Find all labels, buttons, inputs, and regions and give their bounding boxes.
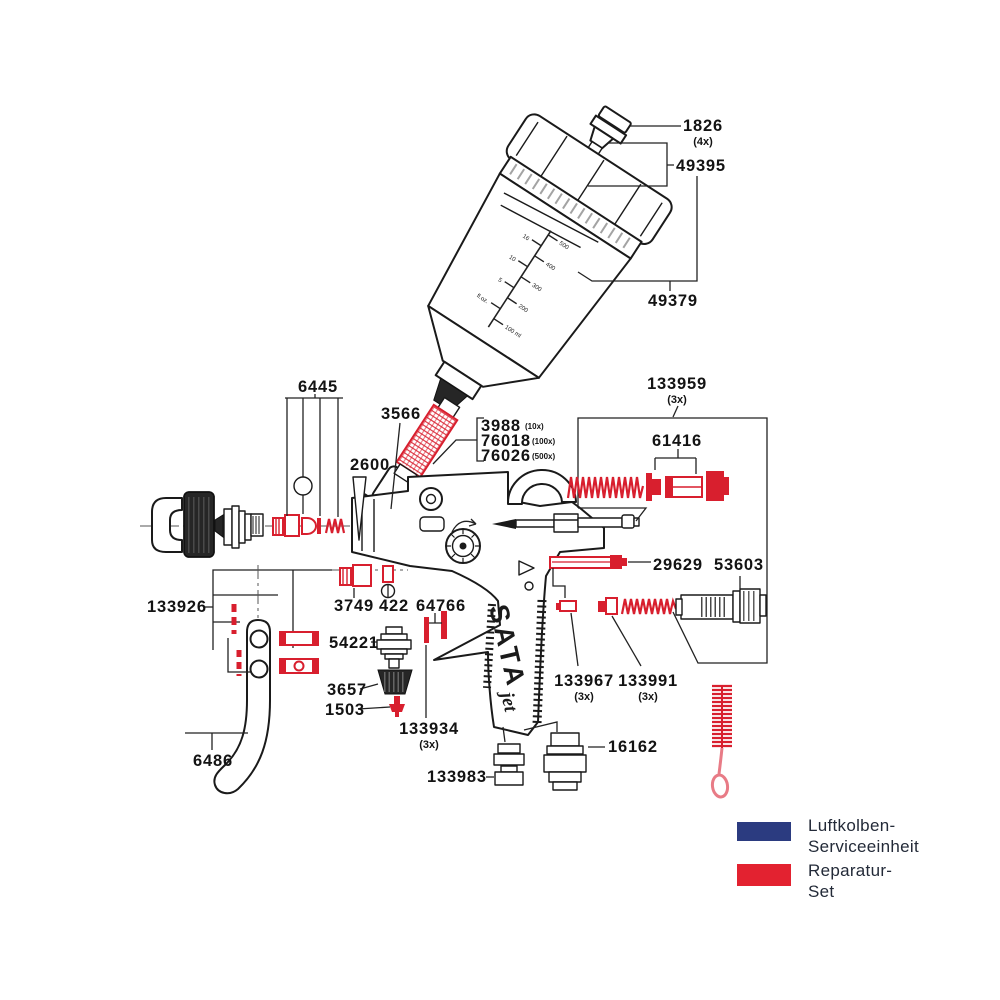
part-qty-133934: (3x) [419, 739, 439, 751]
micrometer-spring [622, 599, 676, 614]
parts-diagram-page: 500 400 300 200 100 ml 16 10 5 fl.oz. [0, 0, 1000, 1000]
air-cap-retainer [152, 498, 182, 552]
fluid-adjustment-knob [377, 627, 411, 668]
trigger-pin-group [213, 565, 332, 676]
part-qty-76026: (500x) [532, 452, 555, 461]
service-unit-box [578, 418, 767, 663]
knurled-cone [378, 670, 412, 694]
legend-label: Serviceeinheit [808, 837, 919, 856]
part-qty-76018: (100x) [532, 437, 555, 446]
part-label-3566: 3566 [381, 405, 421, 423]
air-distribution-screw [340, 565, 371, 586]
nozzle-tip [215, 515, 223, 537]
hanger-hook [508, 470, 576, 504]
part-labels: 1826 (4x) 49395 49379 6445 3566 3988 (10… [147, 117, 764, 786]
part-label-49379: 49379 [648, 292, 698, 310]
exploded-diagram: 500 400 300 200 100 ml 16 10 5 fl.oz. [0, 0, 1000, 1000]
screw-1503 [389, 696, 405, 717]
part-label-133983: 133983 [427, 768, 487, 786]
legend: Luftkolben- Serviceeinheit Reparatur- Se… [737, 816, 919, 901]
connector-16162 [544, 733, 586, 790]
part-label-1503: 1503 [325, 701, 365, 719]
legend-label: Reparatur- [808, 861, 892, 880]
paint-cup: 500 400 300 200 100 ml 16 10 5 fl.oz. [370, 74, 699, 453]
part-label-2600: 2600 [350, 456, 390, 474]
part-label-133967: 133967 [554, 672, 614, 690]
part-label-133926: 133926 [147, 598, 207, 616]
legend-swatch-luftkolben [737, 822, 791, 841]
part-label-76026: 76026 [481, 447, 531, 465]
piston-pin [556, 601, 576, 611]
piston-seal [598, 598, 617, 614]
air-piston-spring [568, 477, 643, 498]
part-label-3749: 3749 [334, 597, 374, 615]
part-label-61416: 61416 [652, 432, 702, 450]
part-label-3657: 3657 [327, 681, 367, 699]
part-label-133934: 133934 [399, 720, 459, 738]
cleaning-brush [711, 686, 732, 798]
part-label-54221: 54221 [329, 634, 379, 652]
nozzle-seal-set [273, 515, 344, 536]
part-qty-133967: (3x) [574, 691, 594, 703]
air-piston-valve-set [646, 471, 729, 501]
part-label-49395: 49395 [676, 157, 726, 175]
part-qty-133991: (3x) [638, 691, 658, 703]
part-qty-3988: (10x) [525, 422, 544, 431]
legend-label: Set [808, 882, 834, 901]
part-label-422: 422 [379, 597, 409, 615]
air-piston-rod [550, 555, 627, 569]
connector-133983 [494, 744, 524, 785]
air-micrometer [676, 589, 766, 623]
part-label-133991: 133991 [618, 672, 678, 690]
part-label-6445: 6445 [298, 378, 338, 396]
air-cap-ring [184, 492, 214, 557]
fluid-nozzle [224, 506, 263, 548]
part-label-29629: 29629 [653, 556, 703, 574]
part-label-64766: 64766 [416, 597, 466, 615]
part-label-1826: 1826 [683, 117, 723, 135]
legend-swatch-reparatur [737, 864, 791, 886]
part-label-53603: 53603 [714, 556, 764, 574]
part-qty-133959: (3x) [667, 394, 687, 406]
part-qty-1826: (4x) [693, 136, 713, 148]
part-label-16162: 16162 [608, 738, 658, 756]
part-label-6486: 6486 [193, 752, 233, 770]
legend-label: Luftkolben- [808, 816, 895, 835]
part-label-133959: 133959 [647, 375, 707, 393]
